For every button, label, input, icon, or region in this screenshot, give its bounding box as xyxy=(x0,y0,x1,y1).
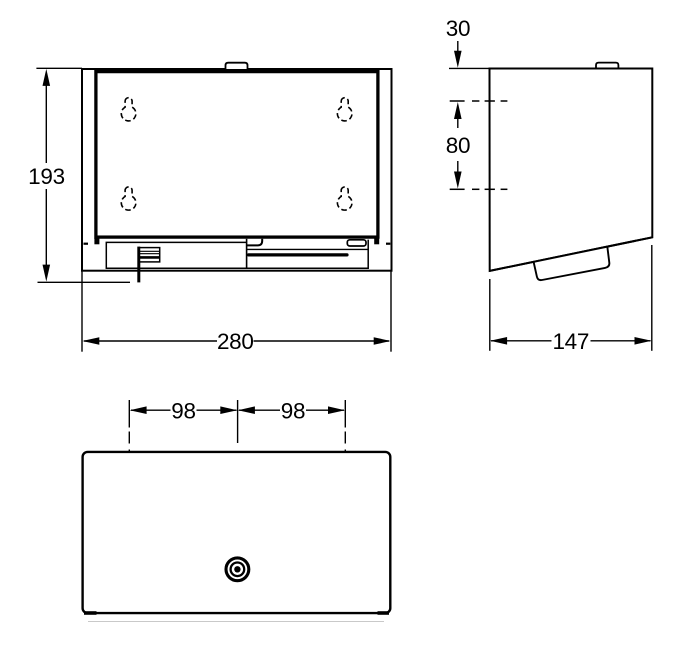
svg-text:80: 80 xyxy=(446,133,470,158)
svg-text:147: 147 xyxy=(552,329,589,354)
svg-text:30: 30 xyxy=(446,16,470,41)
svg-text:280: 280 xyxy=(217,329,254,354)
svg-text:98: 98 xyxy=(281,398,305,423)
svg-text:193: 193 xyxy=(28,164,65,189)
svg-text:98: 98 xyxy=(171,398,195,423)
